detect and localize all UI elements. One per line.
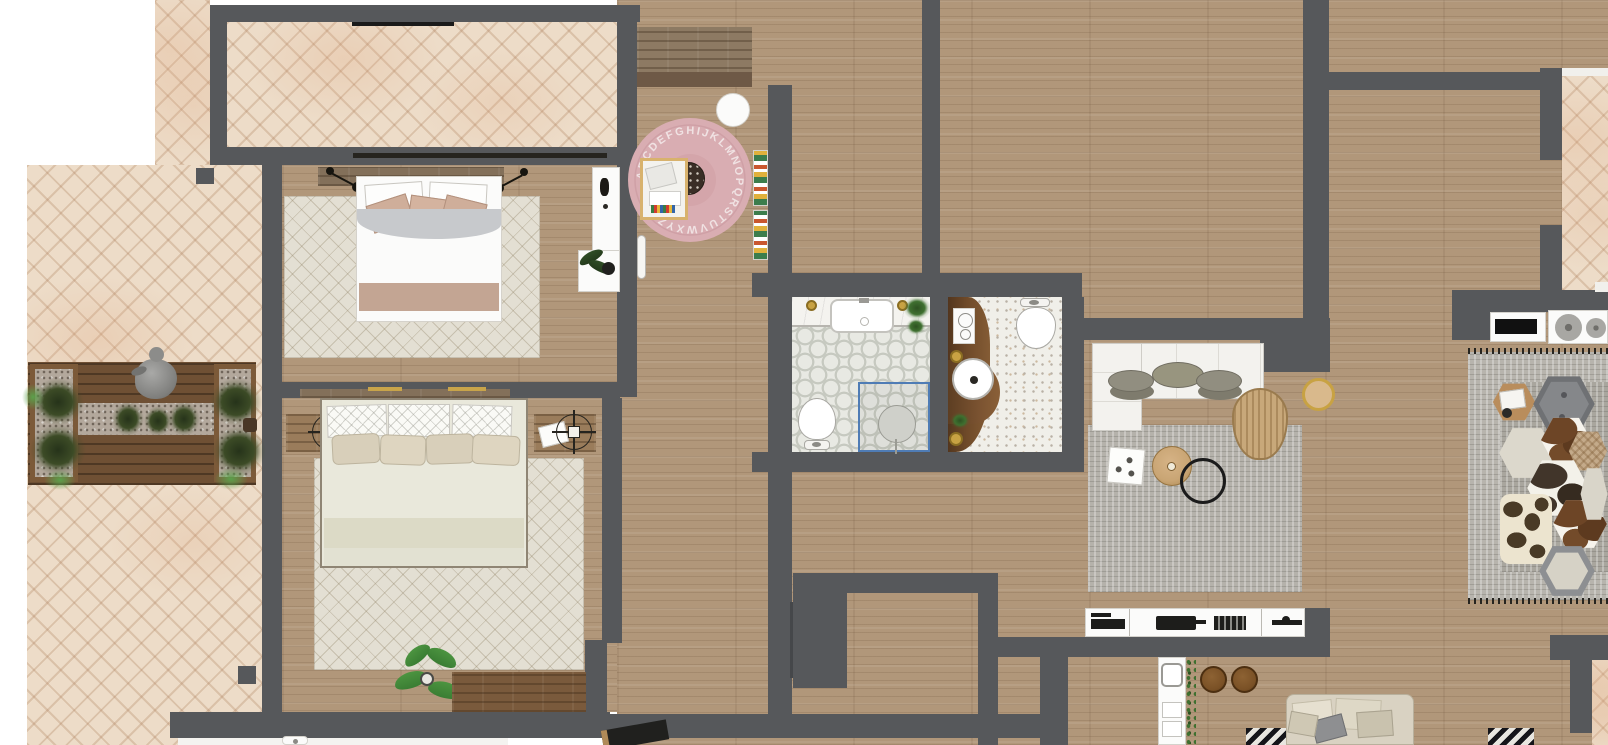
- sofa[interactable]: [1286, 694, 1414, 745]
- wall: [602, 398, 622, 643]
- headboard-light: [368, 387, 402, 391]
- kitchen-island[interactable]: [1158, 657, 1186, 745]
- throw-pillow[interactable]: [1356, 710, 1394, 738]
- pillow[interactable]: [425, 433, 474, 465]
- side-table[interactable]: [1106, 446, 1145, 485]
- wall: [170, 712, 610, 738]
- tv-screen: [1495, 319, 1537, 334]
- door-handle: [243, 418, 257, 432]
- bathroom-plant[interactable]: [903, 296, 931, 320]
- cooktop-icon: [1156, 616, 1196, 630]
- lower-room-floor: [178, 738, 508, 745]
- grass-tuft: [214, 468, 248, 490]
- window: [1595, 282, 1608, 292]
- sconce-pivot: [520, 168, 528, 176]
- rug-fringe: [1468, 598, 1608, 604]
- mirror-cabinet[interactable]: [953, 308, 975, 344]
- paper: [645, 162, 677, 190]
- bathroom-plant[interactable]: [950, 412, 970, 429]
- wall: [1084, 318, 1264, 340]
- wall: [210, 5, 640, 22]
- wall: [1305, 608, 1330, 657]
- speaker-icon: [1555, 314, 1582, 341]
- crayon-set: [651, 205, 675, 213]
- throw-pillow[interactable]: [1287, 711, 1318, 738]
- round-cushion[interactable]: [1108, 370, 1154, 392]
- desk-decor: [600, 178, 609, 196]
- shower-pipe: [895, 439, 897, 454]
- wall: [793, 573, 998, 593]
- terrace-strip-floor: [155, 0, 210, 165]
- bookshelf[interactable]: [753, 210, 768, 260]
- ceiling-light-symbol[interactable]: [552, 410, 596, 454]
- island-sink: [1161, 663, 1183, 687]
- audio-console[interactable]: [1548, 310, 1608, 344]
- wall: [1570, 657, 1592, 733]
- window: [352, 22, 454, 26]
- window-track: [353, 153, 607, 158]
- kids-table[interactable]: [640, 158, 688, 220]
- shower-drain: [878, 405, 916, 443]
- desk-decor: [603, 204, 608, 209]
- pillow[interactable]: [379, 434, 426, 466]
- wall: [1540, 225, 1562, 292]
- right-balcony-floor: [1562, 75, 1608, 290]
- wall: [1329, 72, 1544, 90]
- rolled-mat[interactable]: [637, 235, 646, 279]
- wall: [262, 147, 282, 712]
- plant-pot: [602, 262, 615, 275]
- vessel-sink[interactable]: [952, 358, 994, 400]
- wall: [998, 637, 1330, 657]
- oven-icon: [1091, 613, 1111, 617]
- grill-icon: [1214, 616, 1246, 630]
- wall: [922, 0, 940, 297]
- wall: [210, 5, 227, 165]
- sconce-pivot: [326, 167, 334, 175]
- grass-tuft: [22, 384, 44, 410]
- open-door[interactable]: [790, 602, 793, 678]
- table-decor: [1502, 408, 1512, 418]
- speaker-icon: [1586, 318, 1606, 338]
- bar-stool[interactable]: [1231, 666, 1258, 693]
- shrub-plant[interactable]: [30, 424, 86, 476]
- shrub-plant[interactable]: [168, 402, 200, 436]
- round-cushion[interactable]: [1196, 370, 1242, 392]
- rug-fringe: [1468, 348, 1608, 354]
- tray-table[interactable]: [1302, 378, 1335, 411]
- faucet-icon: [1282, 616, 1290, 624]
- gold-accent: [949, 432, 963, 446]
- bed-king[interactable]: [320, 398, 528, 568]
- pillow[interactable]: [388, 404, 450, 437]
- bed-double[interactable]: [356, 176, 502, 322]
- sunroom-floor: [227, 22, 617, 147]
- wall: [585, 640, 607, 713]
- folded-sheet: [357, 209, 501, 239]
- small-appliance[interactable]: [282, 736, 308, 745]
- giraffe-pouf[interactable]: [1500, 494, 1552, 564]
- window: [1562, 68, 1608, 76]
- wall: [1062, 297, 1084, 472]
- oven-icon: [1091, 619, 1125, 629]
- striped-rug[interactable]: [1488, 728, 1534, 745]
- bar-stool[interactable]: [1200, 666, 1227, 693]
- island-plants: [1185, 658, 1196, 744]
- headboard-light: [448, 387, 486, 391]
- bathroom-plant[interactable]: [906, 318, 926, 335]
- stair-block: [793, 593, 847, 688]
- floor-mirror[interactable]: [1180, 458, 1226, 504]
- kitchen-counter[interactable]: [1085, 608, 1305, 637]
- shrub-plant[interactable]: [112, 402, 144, 436]
- tv-console[interactable]: [1490, 312, 1546, 342]
- wall: [1540, 68, 1562, 160]
- wall: [768, 85, 792, 715]
- gold-candle[interactable]: [806, 300, 817, 311]
- pillow[interactable]: [331, 433, 381, 465]
- door-jamb[interactable]: [238, 666, 256, 684]
- wall: [752, 452, 1082, 472]
- sink[interactable]: [830, 299, 894, 333]
- bookshelf[interactable]: [753, 150, 768, 206]
- faucet: [859, 298, 869, 303]
- book[interactable]: [1499, 388, 1526, 410]
- foot-runner: [359, 283, 499, 311]
- wardrobe-front: [637, 72, 752, 87]
- statue[interactable]: [131, 345, 181, 401]
- toilet[interactable]: [798, 398, 836, 452]
- cooktop-handle: [1194, 620, 1206, 624]
- wall: [752, 273, 1082, 297]
- duvet-fold: [324, 518, 524, 548]
- wall: [930, 297, 948, 454]
- wall: [1452, 290, 1492, 340]
- pillow[interactable]: [471, 434, 521, 466]
- wall: [1303, 0, 1329, 345]
- floor-plan-canvas: ABCDEFGHIJKLMNOPQRSTUVWXYZ: [0, 0, 1608, 745]
- corner-balcony-floor: [1592, 657, 1608, 745]
- plant-pot: [420, 672, 434, 686]
- paper: [649, 191, 681, 206]
- drain: [860, 317, 869, 326]
- wall: [1040, 657, 1068, 745]
- shower[interactable]: [858, 382, 930, 452]
- duvet-edge: [324, 548, 524, 566]
- credenza[interactable]: [452, 672, 586, 712]
- door-jamb[interactable]: [196, 168, 214, 184]
- grass-tuft: [44, 470, 76, 490]
- wall: [978, 593, 998, 745]
- toilet[interactable]: [1016, 298, 1056, 350]
